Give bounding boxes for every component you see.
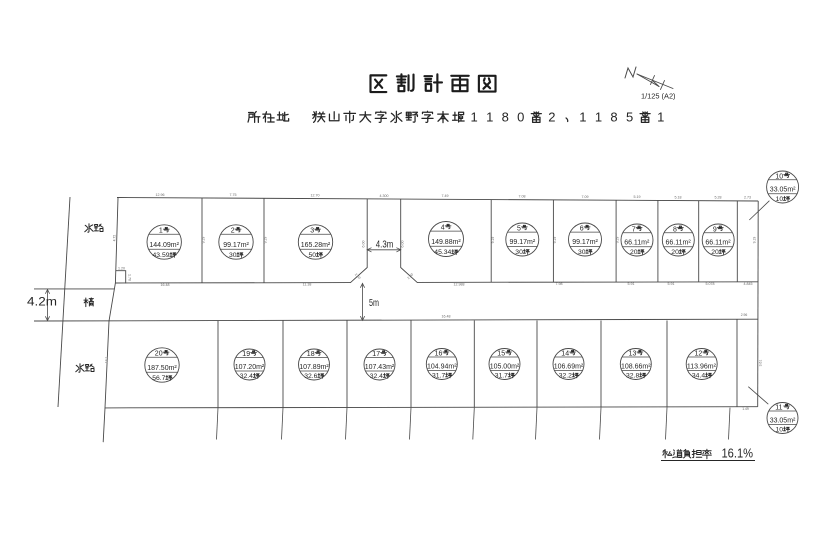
svg-text:149.88m²: 149.88m² xyxy=(431,239,461,246)
svg-text:1.49: 1.49 xyxy=(742,407,749,411)
svg-text:6.00: 6.00 xyxy=(362,241,366,248)
svg-text:32.4: 32.4 xyxy=(240,373,253,380)
svg-text:7.49: 7.49 xyxy=(442,194,449,198)
svg-text:4.3m: 4.3m xyxy=(376,240,394,251)
svg-text:113.96m²: 113.96m² xyxy=(687,363,717,370)
svg-text:32.4: 32.4 xyxy=(370,373,383,380)
svg-text:5: 5 xyxy=(626,110,633,125)
svg-text:30: 30 xyxy=(515,249,523,256)
svg-text:1: 1 xyxy=(657,110,664,125)
svg-text:50: 50 xyxy=(309,252,317,259)
svg-text:5.91: 5.91 xyxy=(668,282,675,286)
svg-text:7.08: 7.08 xyxy=(519,195,526,199)
svg-text:20: 20 xyxy=(630,249,638,256)
svg-text:108.66m²: 108.66m² xyxy=(621,363,651,370)
svg-text:107.20m²: 107.20m² xyxy=(235,364,265,371)
svg-text:10: 10 xyxy=(776,427,784,434)
svg-text:1: 1 xyxy=(579,110,586,125)
svg-text:30: 30 xyxy=(229,252,237,259)
svg-text:12.988: 12.988 xyxy=(454,282,465,286)
svg-text:18: 18 xyxy=(307,351,315,358)
svg-text:105.00m²: 105.00m² xyxy=(490,363,520,370)
svg-text:7.75: 7.75 xyxy=(230,193,237,197)
svg-text:0: 0 xyxy=(517,110,524,125)
svg-text:16.48: 16.48 xyxy=(161,283,170,287)
svg-text:5.28: 5.28 xyxy=(715,196,722,200)
svg-text:20: 20 xyxy=(155,351,163,358)
svg-text:7.09: 7.09 xyxy=(582,195,589,199)
svg-text:12: 12 xyxy=(695,351,703,358)
svg-text:13: 13 xyxy=(629,351,637,358)
svg-text:14: 14 xyxy=(561,351,569,358)
svg-text:9.19: 9.19 xyxy=(491,237,495,244)
svg-text:32.8: 32.8 xyxy=(626,373,639,380)
svg-text:11.38: 11.38 xyxy=(303,283,312,287)
svg-text:9.19: 9.19 xyxy=(553,237,557,244)
svg-text:3: 3 xyxy=(310,228,314,235)
svg-text:5: 5 xyxy=(517,226,521,233)
svg-text:33.05m²: 33.05m² xyxy=(770,187,796,194)
svg-text:66.11m²: 66.11m² xyxy=(666,240,692,247)
svg-text:12.70: 12.70 xyxy=(311,194,320,198)
svg-text:3.61: 3.61 xyxy=(759,360,763,367)
svg-text:8: 8 xyxy=(610,110,617,125)
svg-text:16: 16 xyxy=(435,351,443,358)
svg-text:9: 9 xyxy=(713,226,717,233)
svg-text:107.43m²: 107.43m² xyxy=(365,364,395,371)
svg-text:106.69m²: 106.69m² xyxy=(554,363,584,370)
svg-text:5.18: 5.18 xyxy=(675,195,682,199)
svg-text:31.7: 31.7 xyxy=(432,373,445,380)
svg-text:7.98: 7.98 xyxy=(556,282,563,286)
svg-text:15: 15 xyxy=(497,351,505,358)
svg-text:1: 1 xyxy=(595,110,602,125)
svg-text:10: 10 xyxy=(775,173,783,180)
svg-text:8: 8 xyxy=(673,226,677,233)
svg-text:33.05m²: 33.05m² xyxy=(770,417,796,424)
svg-text:20: 20 xyxy=(711,249,719,256)
svg-text:2.96: 2.96 xyxy=(741,313,748,317)
svg-text:13.1: 13.1 xyxy=(105,357,109,364)
svg-text:34.4: 34.4 xyxy=(692,373,705,380)
svg-text:5.19: 5.19 xyxy=(634,195,641,199)
svg-text:9.19: 9.19 xyxy=(616,237,620,244)
svg-text:2: 2 xyxy=(231,228,235,235)
svg-text:187.50m²: 187.50m² xyxy=(147,365,177,372)
svg-text:30: 30 xyxy=(578,249,586,256)
svg-text:66.11m²: 66.11m² xyxy=(624,240,650,247)
svg-text:2.73: 2.73 xyxy=(744,196,751,200)
svg-text:4.72: 4.72 xyxy=(113,235,117,242)
svg-text:31.7: 31.7 xyxy=(495,373,508,380)
svg-text:165.28m²: 165.28m² xyxy=(301,242,331,249)
svg-text:16.48: 16.48 xyxy=(442,314,451,318)
svg-text:144.09m²: 144.09m² xyxy=(149,242,179,249)
svg-text:9.19: 9.19 xyxy=(202,237,206,244)
svg-text:66.11m²: 66.11m² xyxy=(705,240,731,247)
svg-text:6: 6 xyxy=(580,226,584,233)
svg-text:56.7: 56.7 xyxy=(152,375,165,382)
svg-text:5m: 5m xyxy=(369,297,379,309)
svg-text:2: 2 xyxy=(548,110,555,125)
svg-text:1: 1 xyxy=(470,110,477,125)
svg-text:4: 4 xyxy=(441,225,445,232)
svg-text:9.19: 9.19 xyxy=(753,237,757,244)
svg-text:104.94m²: 104.94m² xyxy=(427,363,457,370)
svg-text:12.96: 12.96 xyxy=(156,193,165,197)
svg-text:17: 17 xyxy=(372,351,380,358)
svg-text:1.20: 1.20 xyxy=(118,266,125,270)
svg-text:32.2: 32.2 xyxy=(559,373,572,380)
svg-text:11: 11 xyxy=(775,405,782,412)
svg-text:8: 8 xyxy=(502,110,509,125)
svg-text:4.2m: 4.2m xyxy=(27,295,57,309)
svg-text:7: 7 xyxy=(632,226,636,233)
svg-text:99.17m²: 99.17m² xyxy=(223,242,249,249)
svg-text:43.59: 43.59 xyxy=(153,252,170,259)
svg-text:99.17m²: 99.17m² xyxy=(572,239,598,246)
svg-text:1: 1 xyxy=(159,228,163,235)
svg-text:19: 19 xyxy=(242,351,250,358)
svg-text:1.70: 1.70 xyxy=(127,274,131,281)
svg-text:4.300: 4.300 xyxy=(380,194,389,198)
svg-text:1: 1 xyxy=(486,110,493,125)
svg-text:107.89m²: 107.89m² xyxy=(299,364,329,371)
svg-text:5.91: 5.91 xyxy=(628,282,635,286)
svg-text:99.17m²: 99.17m² xyxy=(510,239,536,246)
svg-text:10: 10 xyxy=(776,196,784,203)
svg-text:20: 20 xyxy=(671,249,679,256)
svg-text:5.078: 5.078 xyxy=(706,282,715,286)
svg-text:6.00: 6.00 xyxy=(401,241,405,248)
svg-text:4.845: 4.845 xyxy=(744,282,753,286)
svg-text:16.1%: 16.1% xyxy=(722,446,754,461)
svg-text:1/125 (A2): 1/125 (A2) xyxy=(641,92,676,101)
svg-text:45.34: 45.34 xyxy=(434,249,451,256)
svg-text:9.19: 9.19 xyxy=(264,237,268,244)
svg-text:32.6: 32.6 xyxy=(304,373,317,380)
